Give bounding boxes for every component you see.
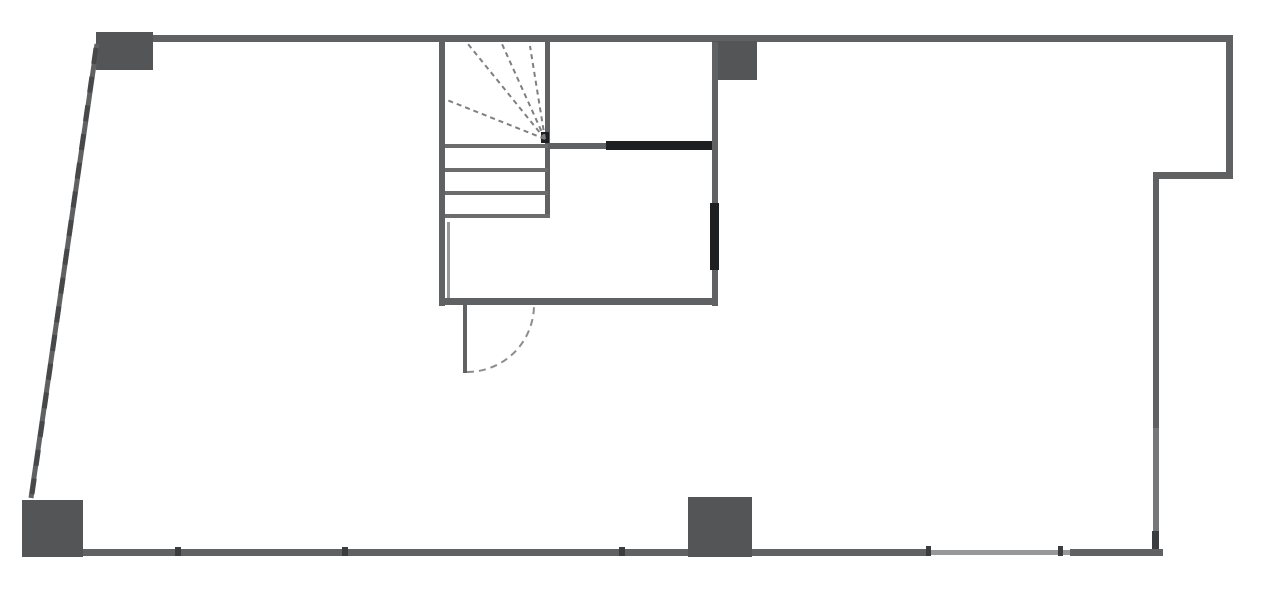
bottom-wall-right: [1070, 549, 1163, 556]
column-top-middle: [712, 41, 757, 80]
stair-left-wall: [439, 42, 445, 306]
bottom-wall-joint-2: [342, 547, 348, 556]
winder-ray-mid-left: [468, 44, 545, 139]
right-notch-wall: [1153, 172, 1233, 179]
mid-wall-dark-segment: [606, 141, 718, 150]
right-wall-corner-nub: [1152, 531, 1159, 549]
stair-tread-3: [445, 191, 548, 195]
winder-ray-right: [530, 46, 545, 139]
column-bottom-middle: [688, 497, 752, 557]
interior-wall-dark-segment: [710, 203, 719, 270]
stair-tread-4: [445, 214, 550, 218]
stair-left-inner-face: [447, 222, 450, 298]
column-top-left: [96, 32, 153, 70]
bottom-wall-joint-4: [926, 546, 931, 556]
bottom-wall-joint-5: [1058, 546, 1063, 556]
top-wall: [97, 35, 1233, 42]
floor-plan-page: [0, 0, 1280, 601]
right-wall-upper: [1226, 35, 1233, 179]
stair-tread-2: [445, 168, 548, 172]
door-swing-arc: [467, 305, 534, 372]
bottom-wall-joint-3: [619, 547, 625, 556]
door-leaf: [463, 305, 467, 373]
bottom-wall-joint-1: [175, 547, 181, 556]
hall-bottom-wall: [439, 298, 718, 305]
stair-tread-1: [445, 144, 548, 148]
right-wall-middle: [1153, 172, 1159, 428]
column-bottom-left: [22, 500, 83, 557]
floor-plan-canvas: [0, 0, 1280, 601]
bottom-wall-left: [80, 549, 930, 556]
bottom-wall-window: [930, 550, 1070, 555]
